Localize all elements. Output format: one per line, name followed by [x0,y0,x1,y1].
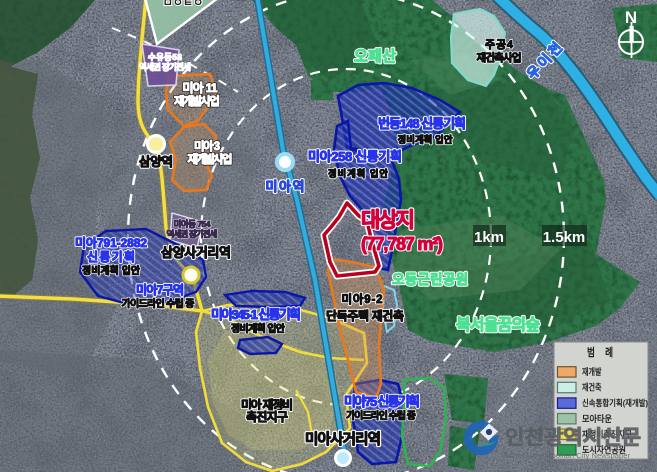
svg-text:정비계획 입안: 정비계획 입안 [328,168,388,180]
svg-text:미아258 신통기획: 미아258 신통기획 [308,149,402,164]
svg-text:범 례: 범 례 [587,345,617,359]
svg-text:단독주택 재건축: 단독주택 재건축 [326,308,404,323]
svg-text:1km: 1km [474,229,504,246]
svg-text:재개발: 재개발 [582,366,602,377]
svg-text:신통기획: 신통기획 [87,249,135,264]
svg-text:미아역: 미아역 [266,179,305,194]
svg-text:미아75 신통기획: 미아75 신통기획 [344,394,420,409]
svg-text:정비계획 입안: 정비계획 입안 [398,134,453,146]
svg-text:미아791-2882: 미아791-2882 [75,235,147,250]
svg-text:가이드라인 수립 중: 가이드라인 수립 중 [122,297,195,310]
svg-text:미아 3: 미아 3 [194,139,220,153]
svg-text:역세권 장기전세: 역세권 장기전세 [167,229,218,239]
svg-text:대상지: 대상지 [361,209,415,232]
svg-text:미아동 754: 미아동 754 [174,219,211,229]
svg-text:미아7구역: 미아7구역 [136,282,184,297]
svg-text:미아345-1 신통기획: 미아345-1 신통기획 [211,307,301,322]
svg-text:미아9-2: 미아9-2 [342,292,383,306]
svg-text:(77,787 m²): (77,787 m²) [361,234,443,254]
svg-text:북서울꿈의숲: 북서울꿈의숲 [456,316,540,334]
svg-text:재건축: 재건축 [582,382,602,393]
svg-text:재건축사업: 재건축사업 [477,51,522,64]
svg-text:역세권 장기전세: 역세권 장기전세 [139,62,191,72]
svg-text:오패산: 오패산 [354,48,396,65]
svg-text:번동148 신통기획: 번동148 신통기획 [378,116,466,131]
svg-text:ㅁㅇㅌㅇ: ㅁㅇㅌㅇ [163,0,203,9]
svg-text:Incheon Metropolitan City News: Incheon Metropolitan City Newspaper [503,451,630,460]
svg-text:모아타운: 모아타운 [582,413,612,424]
svg-text:수유동58: 수유동58 [148,52,182,62]
svg-text:정비계획 입안: 정비계획 입안 [231,322,286,335]
svg-text:재개발사업: 재개발사업 [174,94,220,108]
svg-text:오동근린공원: 오동근린공원 [392,271,468,287]
svg-text:재개발사업: 재개발사업 [188,152,233,166]
svg-text:주공4: 주공4 [485,38,514,51]
svg-text:신속통합기획(재개발): 신속통합기획(재개발) [582,398,648,408]
svg-text:촉진지구: 촉진지구 [246,409,288,424]
svg-text:삼양역: 삼양역 [139,154,173,169]
svg-text:정비계획 입안: 정비계획 입안 [82,264,141,277]
svg-text:미아사거리역: 미아사거리역 [305,431,381,448]
svg-text:1.5km: 1.5km [543,229,586,246]
svg-text:삼양사거리역: 삼양사거리역 [161,245,231,260]
svg-text:인천광역시신문: 인천광역시신문 [505,426,641,449]
svg-text:미아 11: 미아 11 [183,80,218,95]
svg-text:가이드라인 수립 중: 가이드라인 수립 중 [346,409,416,422]
